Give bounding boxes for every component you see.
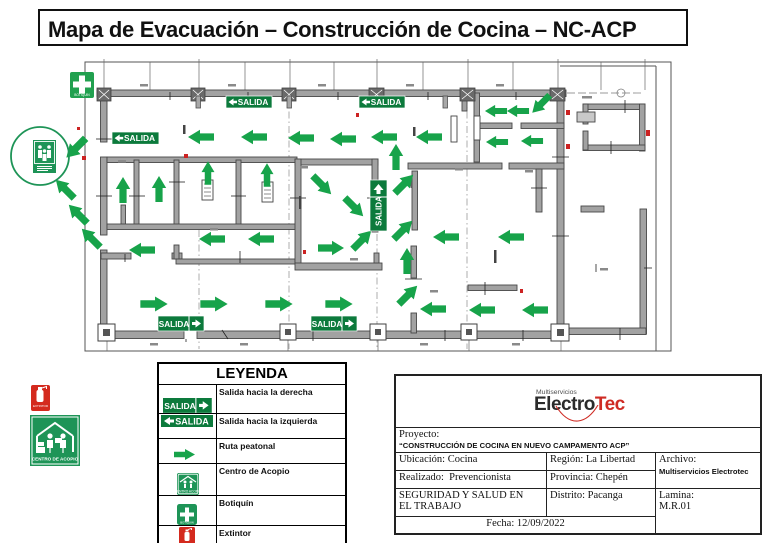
svg-text:CENTRO DE ACOPIO: CENTRO DE ACOPIO bbox=[32, 457, 79, 462]
svg-text:SALIDA: SALIDA bbox=[175, 417, 209, 427]
svg-text:SALIDA: SALIDA bbox=[375, 196, 384, 226]
svg-text:SALIDA: SALIDA bbox=[164, 401, 196, 411]
svg-text:BOTIQUIN: BOTIQUIN bbox=[180, 521, 194, 525]
svg-text:EXTINTOR: EXTINTOR bbox=[33, 404, 49, 408]
svg-text:CENTRO ACOPIO: CENTRO ACOPIO bbox=[177, 489, 199, 493]
svg-text:BOTIQUIN: BOTIQUIN bbox=[74, 93, 90, 97]
